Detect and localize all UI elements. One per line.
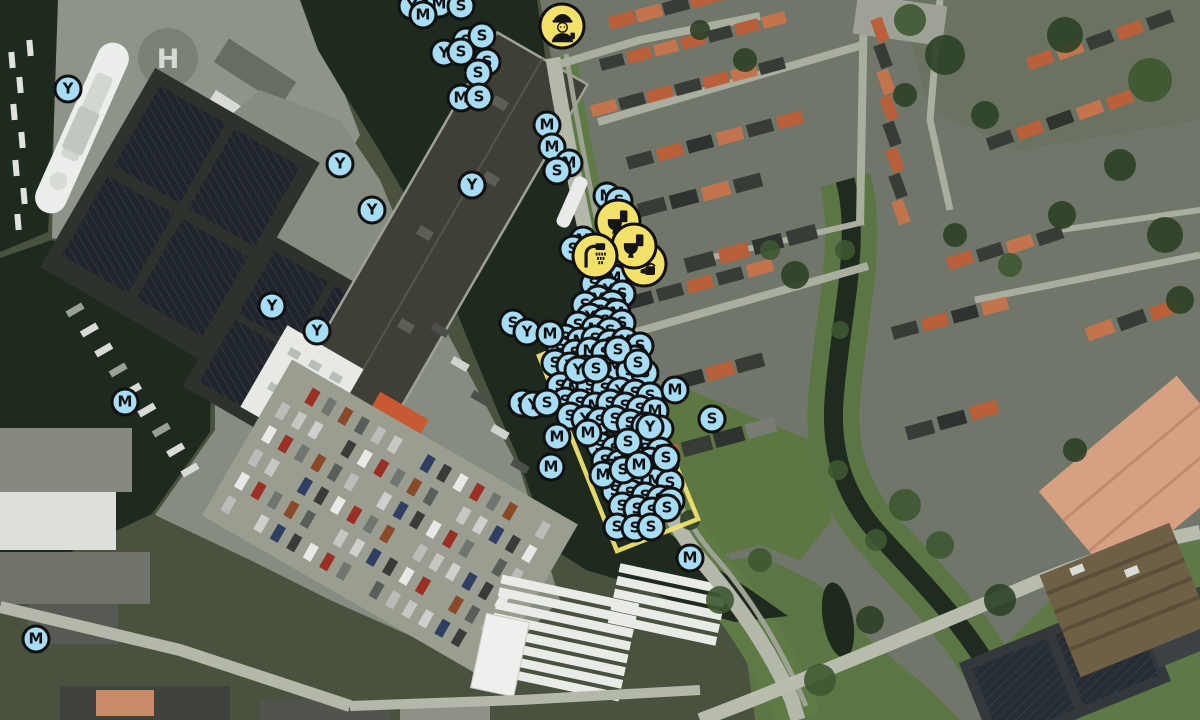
berth-marker-M[interactable]: M <box>537 453 566 482</box>
berth-marker-Y[interactable]: Y <box>358 196 387 225</box>
service-marker-shower[interactable] <box>572 233 619 280</box>
berth-marker-M[interactable]: M <box>536 320 565 349</box>
berth-marker-M[interactable]: M <box>409 1 438 30</box>
berth-marker-Y[interactable]: Y <box>258 292 287 321</box>
berth-marker-Y[interactable]: Y <box>458 171 487 200</box>
toilet-icon <box>620 232 649 261</box>
harbourmaster-icon <box>541 5 583 47</box>
berth-marker-M[interactable]: M <box>111 388 140 417</box>
berth-marker-S[interactable]: S <box>543 157 572 186</box>
berth-marker-M[interactable]: M <box>22 625 51 654</box>
berth-marker-S[interactable]: S <box>533 389 562 418</box>
harbor-aerial-map: H <box>0 0 1200 720</box>
berth-marker-Y[interactable]: Y <box>326 150 355 179</box>
berth-marker-Y[interactable]: Y <box>303 317 332 346</box>
berth-marker-M[interactable]: M <box>625 451 654 480</box>
berth-marker-S[interactable]: S <box>447 0 476 21</box>
berth-marker-S[interactable]: S <box>624 349 653 378</box>
berth-marker-M[interactable]: M <box>543 423 572 452</box>
berth-marker-Y[interactable]: Y <box>54 75 83 104</box>
berth-marker-S[interactable]: S <box>698 405 727 434</box>
berth-marker-S[interactable]: S <box>465 83 494 112</box>
berth-marker-S[interactable]: S <box>582 355 611 384</box>
shower-icon <box>581 242 610 271</box>
service-marker-harbourmaster[interactable] <box>539 3 586 50</box>
berth-marker-M[interactable]: M <box>676 544 705 573</box>
berth-marker-M[interactable]: M <box>661 376 690 405</box>
berth-marker-S[interactable]: S <box>637 513 666 542</box>
markers-layer: YYMMSSSSYSSMSYYYYYMMMMMSMSMSMSSSMSYSMSSS… <box>0 0 1200 720</box>
berth-marker-M[interactable]: M <box>574 419 603 448</box>
berth-marker-S[interactable]: S <box>652 444 681 473</box>
